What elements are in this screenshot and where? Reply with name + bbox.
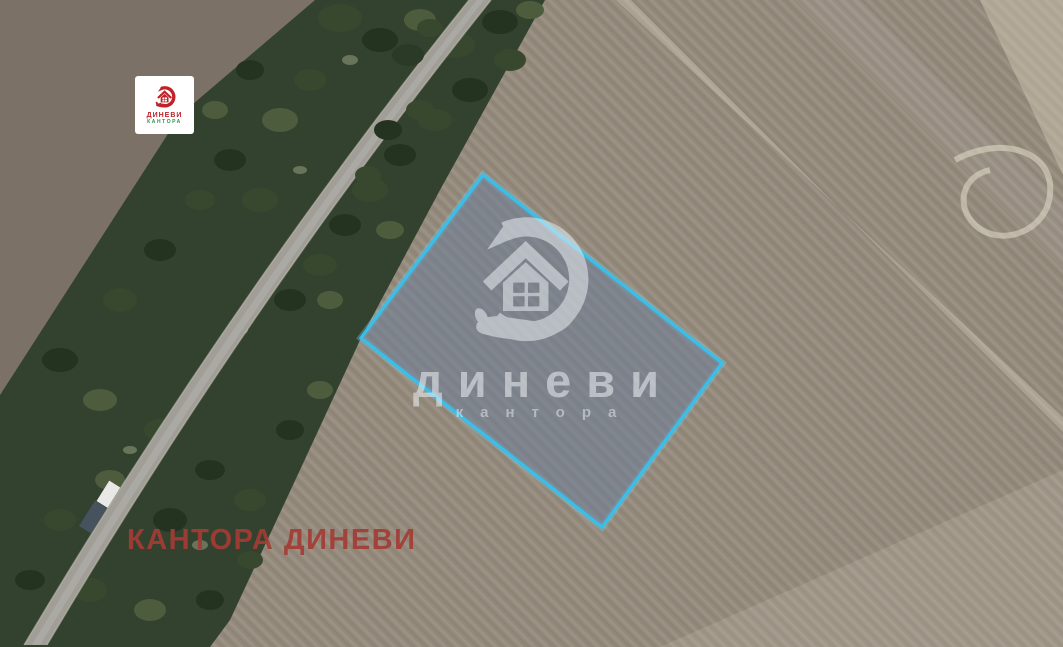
corner-logo-subtitle: КАНТОРА xyxy=(147,120,182,125)
corner-logo-card: ДИНЕВИ КАНТОРА xyxy=(135,76,194,134)
satellite-map: диневи кантора КАНТОРА ДИНЕВИ ДИНЕВИ КАН… xyxy=(0,0,1063,647)
watermark-brand: диневи xyxy=(368,353,704,408)
house-in-hand-logo-icon xyxy=(459,211,597,361)
agency-caption: КАНТОРА ДИНЕВИ xyxy=(127,524,417,557)
house-in-hand-logo-icon xyxy=(153,85,177,111)
watermark-subtitle: кантора xyxy=(391,404,681,421)
corner-logo-brand: ДИНЕВИ xyxy=(147,112,183,119)
